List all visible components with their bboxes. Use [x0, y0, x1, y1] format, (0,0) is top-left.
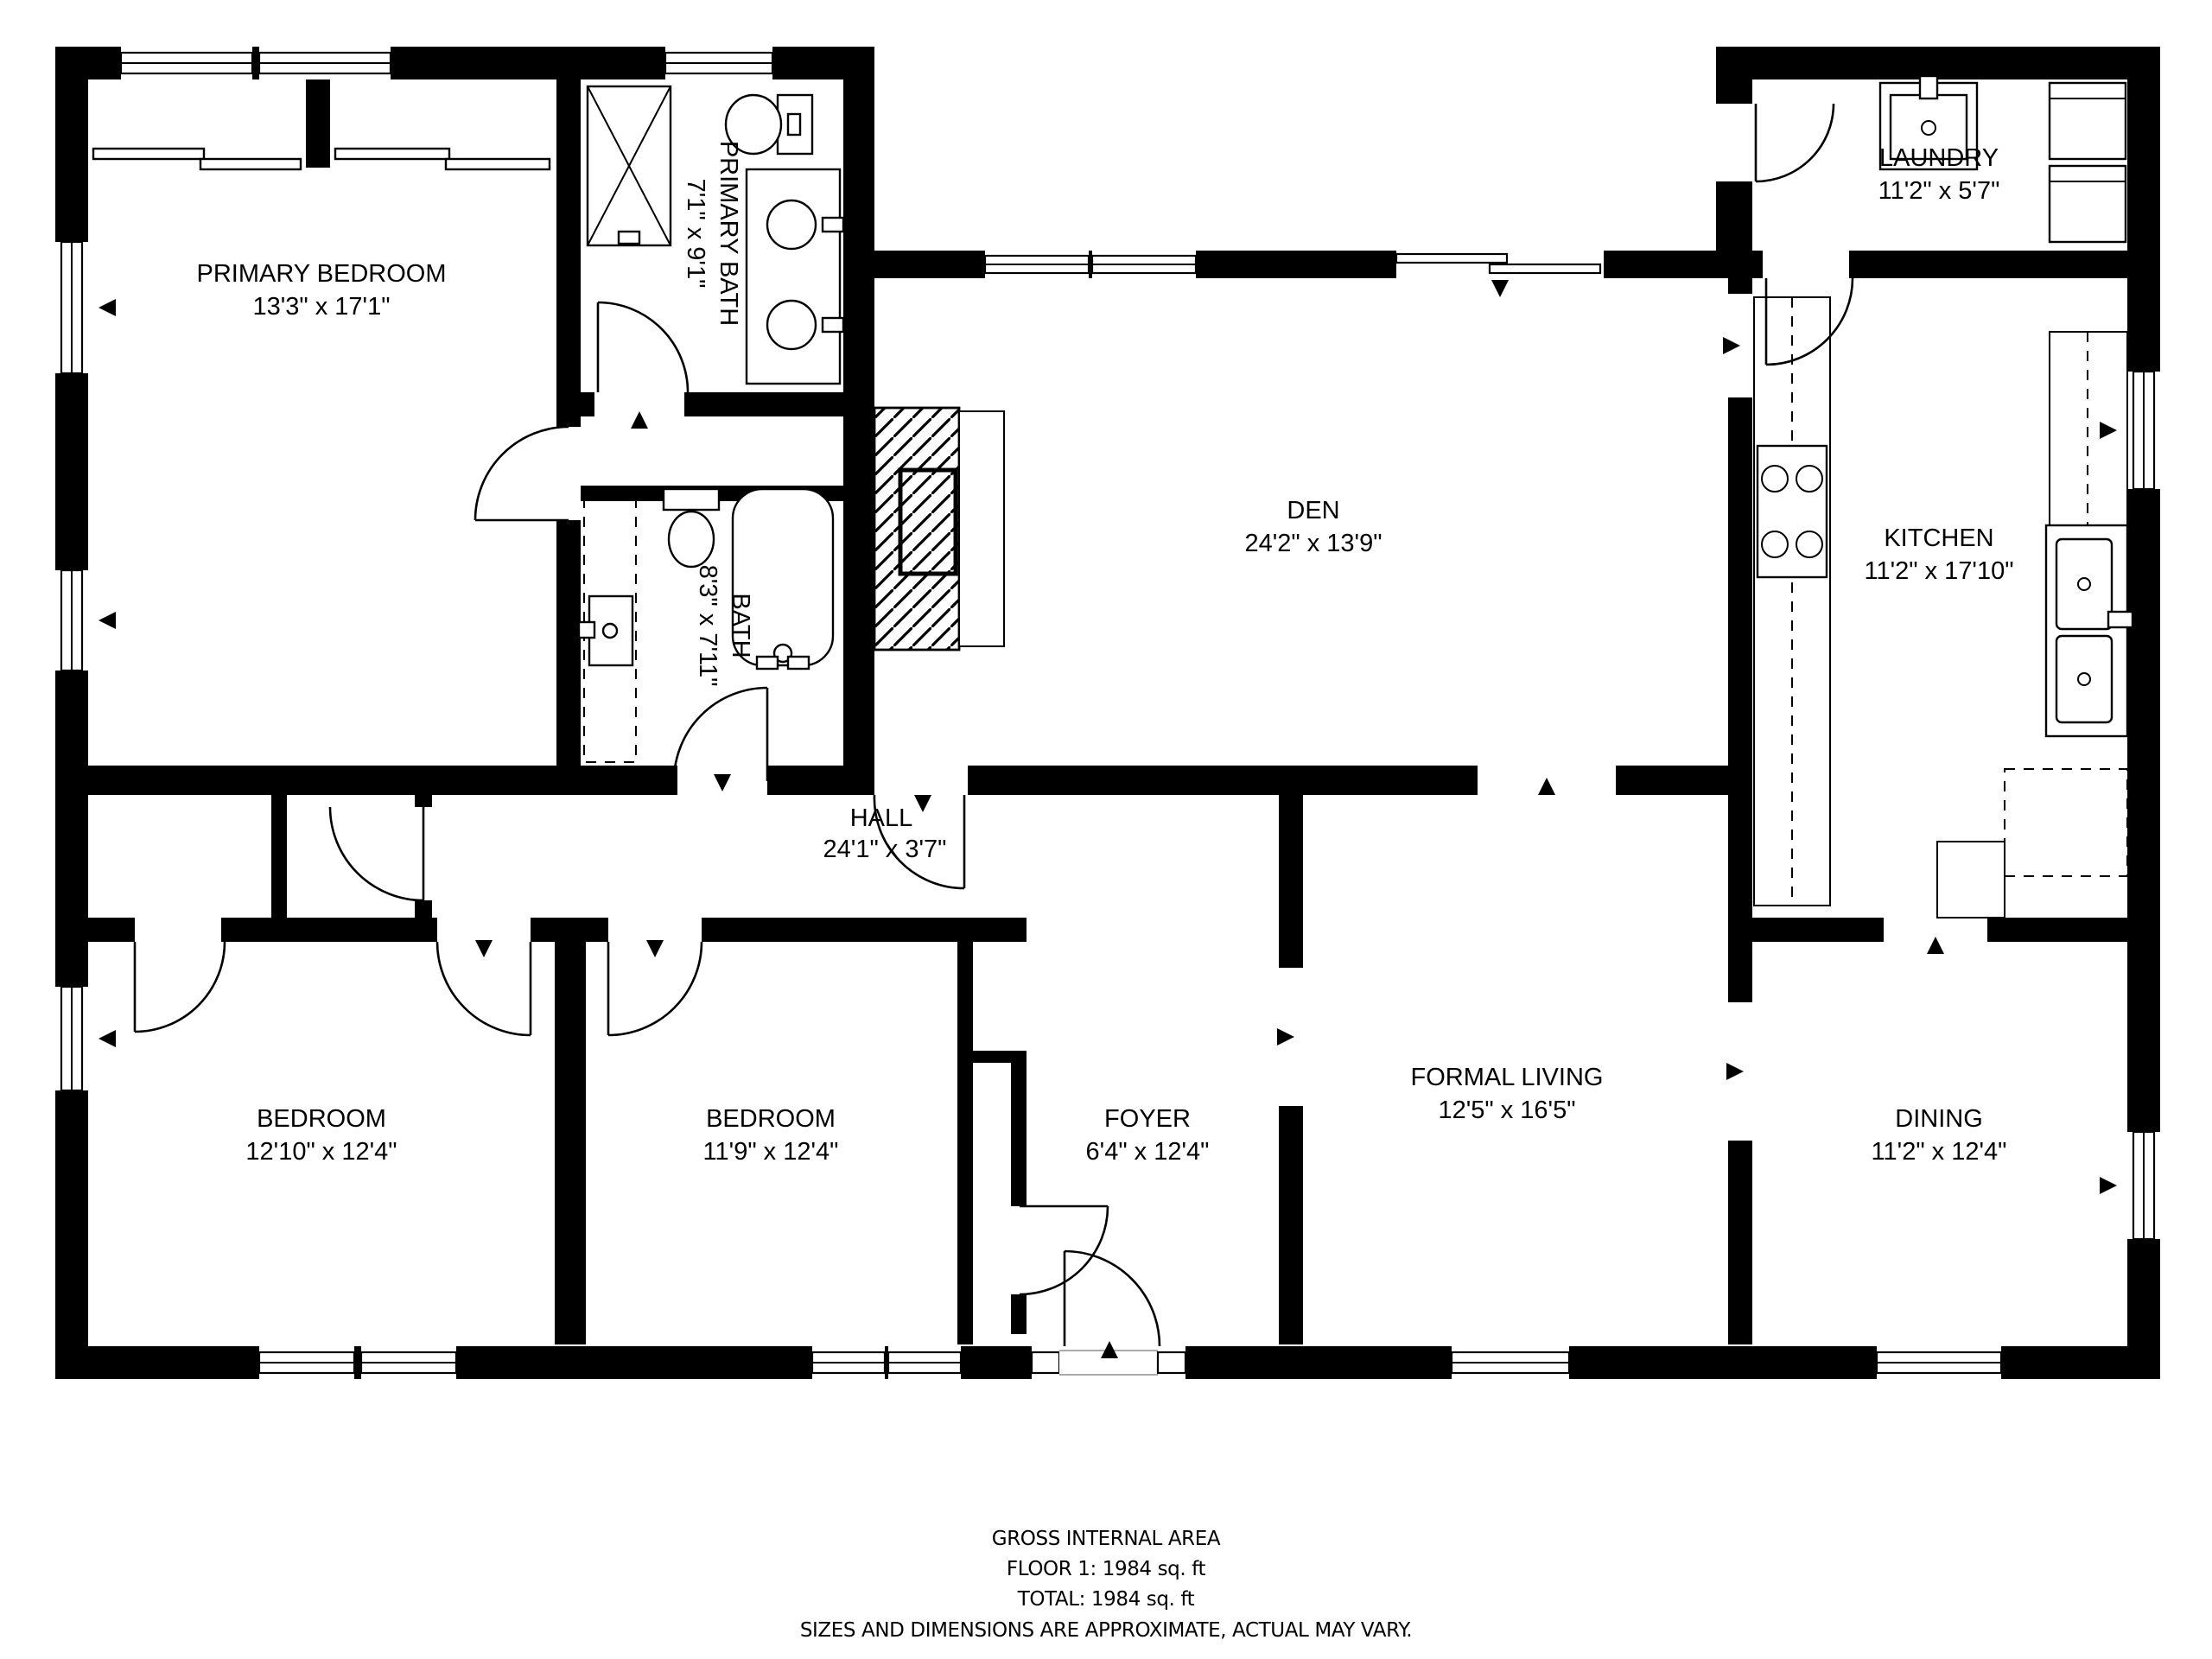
window: [55, 570, 88, 671]
windows: [55, 47, 2160, 1379]
window: [2127, 372, 2160, 489]
primary-bath-door: [598, 302, 688, 392]
footer-total-line: TOTAL: 1984 sq. ft: [1017, 1588, 1195, 1611]
window: [1877, 1346, 2001, 1379]
window: [121, 47, 252, 79]
hall-closet-door: [330, 807, 423, 900]
bypass-closet-door: [335, 149, 550, 169]
window: [259, 1346, 354, 1379]
window: [2127, 1132, 2160, 1239]
label-bedroom-middle: BEDROOM: [706, 1105, 836, 1133]
window: [55, 242, 88, 373]
floor-plan: PRIMARY BEDROOM 13'3" x 17'1" PRIMARY BA…: [0, 0, 2212, 1659]
dims-formal-living: 12'5" x 16'5": [1438, 1096, 1575, 1124]
dryer-icon: [2050, 166, 2126, 242]
window: [259, 47, 391, 79]
bath-vanity-icon: [579, 493, 636, 762]
dims-bedroom-left: 12'10" x 12'4": [245, 1138, 397, 1166]
window: [888, 1346, 961, 1379]
label-laundry: LAUNDRY: [1879, 144, 1999, 172]
primary-bedroom-door: [475, 427, 569, 520]
footer-disclaimer: SIZES AND DIMENSIONS ARE APPROXIMATE, AC…: [800, 1619, 1412, 1642]
dims-bath: 8'3" x 7'11": [694, 565, 721, 687]
label-dining: DINING: [1895, 1105, 1983, 1133]
shower-icon: [588, 86, 671, 245]
label-kitchen: KITCHEN: [1884, 524, 1993, 552]
dims-foyer: 6'4" x 12'4": [1086, 1138, 1210, 1166]
label-bath: BATH: [727, 593, 754, 658]
footer: GROSS INTERNAL AREA FLOOR 1: 1984 sq. ft…: [800, 1528, 1412, 1642]
window: [985, 251, 1089, 278]
entry-sidelight: [1032, 1346, 1059, 1379]
bypass-closet-door: [93, 149, 301, 169]
entry-sidelight: [1158, 1346, 1185, 1379]
dims-den: 24'2" x 13'9": [1244, 530, 1382, 557]
footer-floor-line: FLOOR 1: 1984 sq. ft: [1007, 1558, 1206, 1580]
window: [361, 1346, 456, 1379]
window: [812, 1346, 885, 1379]
window: [665, 47, 772, 79]
sliding-door: [1396, 251, 1604, 278]
stove-icon: [1758, 446, 1827, 577]
dims-kitchen: 11'2" x 17'10": [1864, 557, 2013, 585]
toilet-icon: [664, 489, 719, 567]
kitchen-fixtures: [1754, 297, 2133, 918]
label-bedroom-left: BEDROOM: [257, 1105, 386, 1133]
walls: [55, 47, 2160, 1379]
double-vanity-icon: [747, 169, 843, 384]
dims-primary-bath: 7'1" x 9'1": [682, 179, 709, 289]
washer-icon: [2050, 83, 2126, 159]
front-door: [1065, 1251, 1160, 1346]
laundry-kitchen-door: [1766, 278, 1853, 365]
window: [1452, 1346, 1569, 1379]
dims-primary-bedroom: 13'3" x 17'1": [252, 293, 390, 321]
dims-hall: 24'1" x 3'7": [823, 836, 947, 863]
dims-dining: 11'2" x 12'4": [1872, 1138, 2007, 1166]
label-hall: HALL: [850, 804, 913, 832]
window: [55, 987, 88, 1090]
den-fixtures: [874, 408, 1004, 650]
label-primary-bedroom: PRIMARY BEDROOM: [197, 260, 447, 288]
opening-arrows: [99, 280, 2117, 1358]
bedroom-closet-door: [135, 942, 225, 1032]
label-formal-living: FORMAL LIVING: [1411, 1064, 1604, 1091]
label-primary-bath: PRIMARY BATH: [715, 141, 742, 326]
window: [1092, 251, 1196, 278]
dims-laundry: 11'2" x 5'7": [1878, 177, 2000, 205]
fireplace-icon: [874, 408, 1004, 650]
label-den: DEN: [1287, 497, 1339, 524]
label-foyer: FOYER: [1104, 1105, 1191, 1133]
kitchen-cabinet-dashed: [2005, 769, 2127, 876]
dims-bedroom-middle: 11'9" x 12'4": [703, 1138, 839, 1166]
laundry-entry-door: [1756, 104, 1834, 181]
footer-area-title: GROSS INTERNAL AREA: [992, 1528, 1221, 1550]
kitchen-peninsula: [1937, 842, 2005, 918]
kitchen-sink-icon: [2046, 525, 2133, 736]
